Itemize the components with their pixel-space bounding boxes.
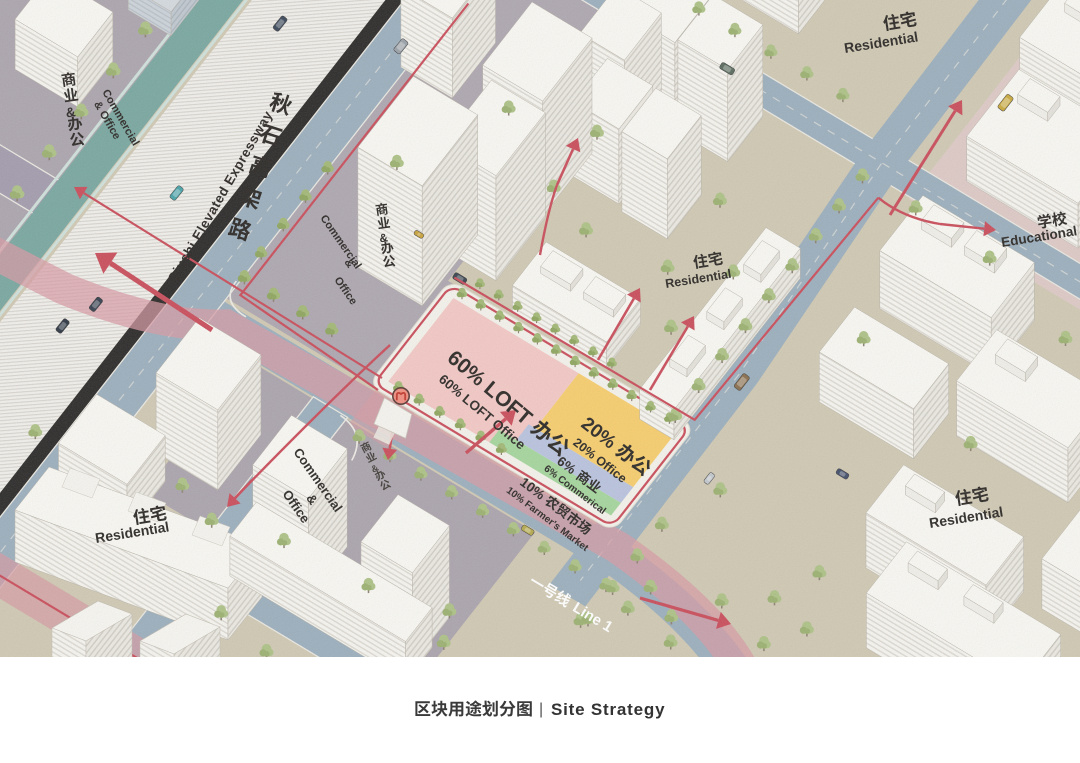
- svg-text:Site Strategy: Site Strategy: [551, 700, 665, 719]
- svg-text:|: |: [539, 701, 543, 718]
